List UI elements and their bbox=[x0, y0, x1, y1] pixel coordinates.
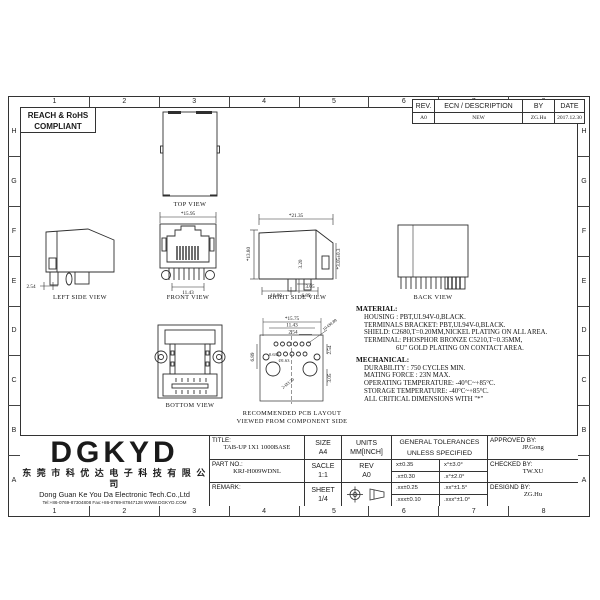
material-line: HOUSING : PBT,UL94V-0,BLACK. bbox=[356, 314, 584, 322]
dim-pcb-254-right: 2.54 bbox=[327, 345, 333, 354]
scale-cell: SACLE1:1 bbox=[305, 460, 342, 483]
company-contact: Tel:+86-0769-87304808 Fax:+86-0769-87847… bbox=[20, 499, 209, 506]
tolerance-value: .xxx±0.10 bbox=[392, 495, 440, 507]
drawing-sheet: 1 2 3 4 5 6 7 8 1 2 3 4 5 6 7 8 H G F E … bbox=[0, 0, 600, 600]
mechanical-heading: MECHANICAL: bbox=[356, 357, 584, 365]
units-label: UNITS bbox=[356, 439, 377, 448]
dim-front-height: *13.80 bbox=[246, 246, 252, 261]
tolerance-header: GENERAL TOLERANCES UNLESS SPECIFIED bbox=[392, 436, 488, 460]
tolerance-value: .xx°±1.5° bbox=[440, 483, 488, 495]
dim-front-pins: 11.43 bbox=[182, 290, 194, 296]
dim-right-1080: 10.80 bbox=[270, 293, 282, 299]
dim-pcb-163: Ø1.63 bbox=[279, 358, 291, 363]
company-name-cn: 东 莞 市 科 优 达 电 子 科 技 有 限 公 司 bbox=[20, 468, 209, 490]
size-cell: SIZEA4 bbox=[305, 436, 342, 460]
projection-cell bbox=[342, 483, 392, 506]
tolerance-value: .xx±0.25 bbox=[392, 483, 440, 495]
material-notes: MATERIAL: HOUSING : PBT,UL94V-0,BLACK. T… bbox=[356, 306, 584, 404]
bottom-view-drawing bbox=[155, 325, 225, 398]
left-side-view-drawing bbox=[40, 229, 114, 290]
material-line: TERMINAL: PHOSPHOR BRONZE C5210,T=0.35MM… bbox=[356, 337, 584, 345]
title-value: TAB-UP 1X1 1000BASE bbox=[210, 444, 304, 451]
pcb-layout-label-line2: VIEWED FROM COMPONENT SIDE bbox=[237, 418, 348, 425]
approved-cell: APPROVED BY: JP.Gong bbox=[488, 436, 578, 460]
approved-value: JP.Gong bbox=[488, 444, 578, 451]
bottom-view-label: BOTTOM VIEW bbox=[166, 402, 215, 409]
right-side-view-drawing bbox=[259, 214, 336, 295]
dim-pcb-1143: 11.43 bbox=[286, 323, 298, 329]
rev-label: REV bbox=[359, 462, 373, 471]
dim-front-width: *15.95 bbox=[181, 211, 196, 217]
top-view-label: TOP VIEW bbox=[174, 201, 207, 208]
mechanical-line: STORAGE TEMPERATURE: -40°C~+85°C. bbox=[356, 388, 584, 396]
left-side-view-label: LEFT SIDE VIEW bbox=[53, 294, 107, 301]
dim-pcb-254: 2.54 bbox=[288, 330, 297, 336]
mechanical-line: OPERATING TEMPERATURE: -40°C~+85°C. bbox=[356, 380, 584, 388]
designed-value: ZG.Hu bbox=[488, 491, 578, 498]
dim-right-305: 3.05 bbox=[305, 284, 314, 290]
material-line: TERMINALS BRACKET: PBT,UL94V-0,BLACK. bbox=[356, 322, 584, 330]
back-view-drawing bbox=[398, 225, 468, 289]
tolerance-header-line1: GENERAL TOLERANCES bbox=[392, 437, 487, 448]
dim-pcb-holes: 10-Ø0.89 bbox=[322, 317, 339, 332]
sheet-label: SHEET bbox=[311, 486, 334, 495]
checked-value: TW.XU bbox=[488, 468, 578, 475]
material-heading: MATERIAL: bbox=[356, 306, 584, 314]
approved-label: APPROVED BY: bbox=[488, 436, 578, 444]
material-line: 6U" GOLD PLATING ON CONTACT AREA. bbox=[356, 345, 584, 353]
sheet-cell: SHEET1/4 bbox=[305, 483, 342, 506]
company-block: DGKYD 东 莞 市 科 优 达 电 子 科 技 有 限 公 司 Dong G… bbox=[20, 436, 210, 506]
title-cell: TITLE: TAB-UP 1X1 1000BASE bbox=[210, 436, 305, 460]
tolerance-value: x±0.35 bbox=[392, 460, 440, 472]
remark-label: REMARK: bbox=[210, 483, 304, 491]
scale-label: SACLE bbox=[312, 462, 335, 471]
dim-pcb-305: 3.05 bbox=[327, 373, 333, 382]
dim-right-689: 6.89 bbox=[301, 293, 310, 299]
dim-right-width: *21.35 bbox=[289, 213, 304, 219]
size-value: A4 bbox=[319, 448, 328, 457]
material-line: SHIELD: C2680,T=0.20MM,NICKEL PLATING ON… bbox=[356, 329, 584, 337]
mechanical-line: ALL CRITICAL DIMENSIONS WITH "*" bbox=[356, 396, 584, 404]
front-view-drawing bbox=[160, 212, 216, 291]
title-label: TITLE: bbox=[210, 436, 304, 444]
dim-left-254: 2.54 bbox=[26, 284, 35, 290]
designed-cell: DESIGND BY: ZG.Hu bbox=[488, 483, 578, 506]
size-label: SIZE bbox=[315, 439, 331, 448]
units-value: MM[INCH] bbox=[350, 448, 383, 457]
rev-value-cell: A0 bbox=[362, 471, 371, 480]
company-name-en: Dong Guan Ke You Da Electronic Tech.Co.,… bbox=[20, 490, 209, 499]
scale-value: 1:1 bbox=[318, 471, 328, 480]
pcb-layout-label-line1: RECOMMENDED PCB LAYOUT bbox=[243, 410, 341, 417]
tolerance-value: .xxx°±1.0° bbox=[440, 495, 488, 507]
tolerance-value: .x±0.30 bbox=[392, 472, 440, 484]
engineering-views: TOP VIEW LEFT SIDE VIEW FRONT VIEW RIGHT… bbox=[0, 0, 600, 600]
units-cell: UNITSMM[INCH] bbox=[342, 436, 392, 460]
checked-label: CHECKED BY: bbox=[488, 460, 578, 468]
dim-pcb-689: 6.89 bbox=[250, 352, 256, 361]
rev-cell: REVA0 bbox=[342, 460, 392, 483]
back-view-label: BACK VIEW bbox=[414, 294, 453, 301]
sheet-value: 1/4 bbox=[318, 495, 328, 504]
title-block: DGKYD 东 莞 市 科 优 达 电 子 科 技 有 限 公 司 Dong G… bbox=[20, 435, 578, 505]
dim-pcb-1575: *15.75 bbox=[285, 316, 300, 322]
mechanical-line: MATING FORCE : 23N MAX. bbox=[356, 372, 584, 380]
part-no-value: KRJ-H009WDNL bbox=[210, 468, 304, 475]
dim-pcb-320: 2-Ø3.20 bbox=[281, 376, 296, 389]
dim-pcb-0635: 0.635 bbox=[269, 352, 280, 357]
dim-right-305-tol: *3.05±0.3 bbox=[336, 248, 342, 269]
mechanical-line: DURABILITY : 750 CYCLES MIN. bbox=[356, 365, 584, 373]
checked-cell: CHECKED BY: TW.XU bbox=[488, 460, 578, 483]
tolerance-value: .x°±2.0° bbox=[440, 472, 488, 484]
part-no-label: PART NO.: bbox=[210, 460, 304, 468]
tolerance-header-line2: UNLESS SPECIFIED bbox=[392, 448, 487, 459]
company-logo: DGKYD bbox=[20, 438, 209, 468]
top-view-drawing bbox=[161, 112, 220, 196]
part-no-cell: PART NO.: KRJ-H009WDNL bbox=[210, 460, 305, 483]
third-angle-projection-icon bbox=[342, 483, 392, 506]
designed-label: DESIGND BY: bbox=[488, 483, 578, 491]
tolerance-value: x°±3.0° bbox=[440, 460, 488, 472]
dim-right-320: 3.20 bbox=[298, 259, 304, 268]
remark-cell: REMARK: bbox=[210, 483, 305, 506]
